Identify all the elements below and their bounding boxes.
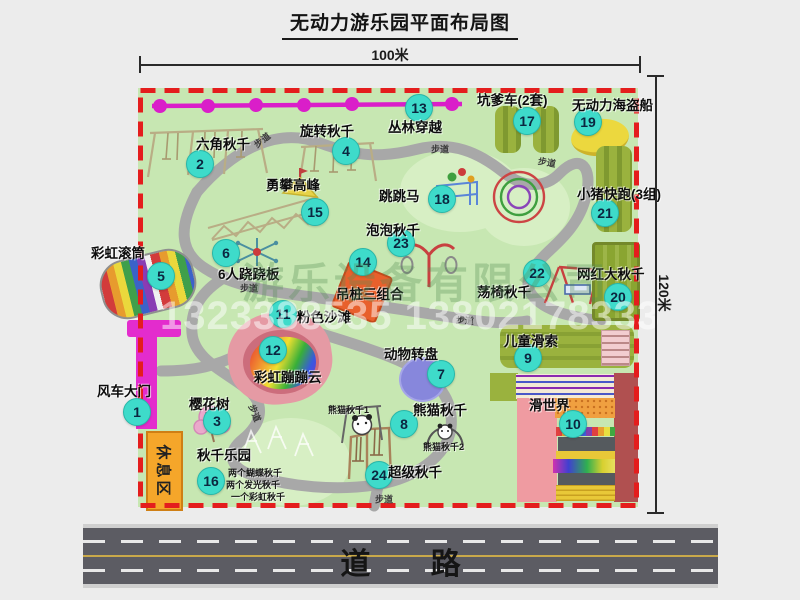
dimension-label-height: 120米 [654, 263, 674, 323]
dimension-tick [647, 512, 664, 514]
slide-world-wavy-band [556, 485, 615, 501]
windmill-gate-column [136, 336, 157, 429]
slide-world-olive-block [490, 373, 518, 401]
slide-world-yellow-band [556, 451, 615, 459]
slide-world-red-column [614, 373, 638, 502]
page-title: 无动力游乐园平面布局图 [0, 8, 800, 40]
slide-world-dark-band-2 [558, 473, 615, 485]
dimension-tick [647, 75, 664, 77]
zipline-ladder-icon [601, 330, 630, 366]
rest-area-label: 休息区 [154, 442, 175, 502]
slide-world-rainbow-slide [553, 459, 615, 473]
kengche-cart-block-2 [533, 106, 559, 153]
page-title-text: 无动力游乐园平面布局图 [282, 8, 518, 40]
animal-carousel-icon [399, 357, 446, 402]
playground-layout-map: 无动力游乐园平面布局图 100米 120米 [0, 0, 800, 600]
grass-patch [232, 418, 350, 506]
rest-area-box: 休息区 [146, 431, 183, 511]
slide-world-orange-band [555, 398, 615, 418]
dimension-label-width: 100米 [140, 45, 640, 65]
kengche-cart-block-1 [495, 106, 521, 153]
windmill-gate-cap [127, 320, 181, 337]
pig-run-track [596, 146, 632, 232]
road-label: 道 路 [83, 539, 718, 583]
slide-world-top-stripes [516, 374, 619, 399]
slide-world-rainbow-band [556, 427, 615, 436]
big-swing-block [592, 242, 640, 321]
slide-world-pink-block [517, 398, 557, 502]
grass-patch [478, 168, 570, 246]
slide-world-dark-band [558, 437, 615, 451]
road: 道 路 [83, 524, 718, 588]
